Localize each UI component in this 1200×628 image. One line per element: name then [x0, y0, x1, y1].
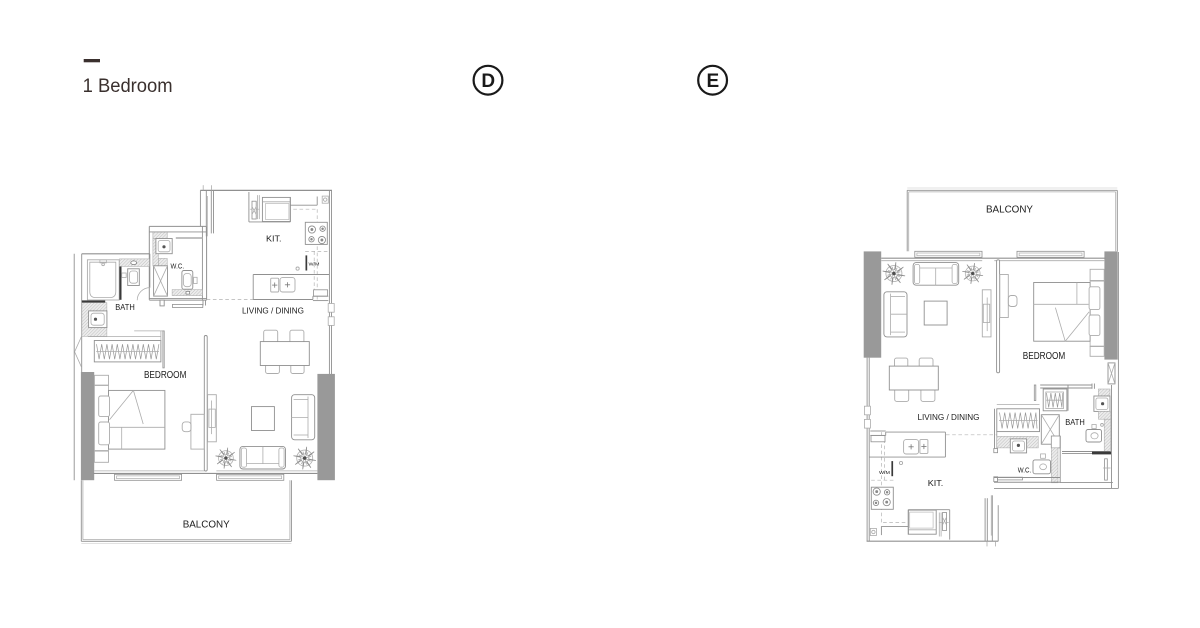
svg-text:LIVING / DINING: LIVING / DINING: [242, 305, 304, 315]
svg-text:W/M: W/M: [879, 470, 891, 475]
svg-text:1 Bedroom: 1 Bedroom: [83, 75, 173, 97]
svg-text:BALCONY: BALCONY: [986, 204, 1033, 215]
svg-text:BATH: BATH: [115, 303, 135, 312]
svg-text:W.C.: W.C.: [1018, 466, 1032, 475]
svg-text:BALCONY: BALCONY: [183, 520, 230, 531]
svg-text:LIVING / DINING: LIVING / DINING: [918, 412, 980, 422]
svg-text:W/M: W/M: [309, 262, 321, 267]
svg-text:BEDROOM: BEDROOM: [144, 370, 187, 381]
svg-text:E: E: [707, 71, 720, 92]
svg-text:BATH: BATH: [1065, 418, 1085, 427]
svg-text:KIT.: KIT.: [266, 235, 282, 244]
svg-text:W.C.: W.C.: [171, 261, 185, 270]
svg-text:D: D: [481, 71, 495, 92]
svg-text:KIT.: KIT.: [928, 479, 944, 488]
svg-text:BEDROOM: BEDROOM: [1023, 351, 1066, 362]
